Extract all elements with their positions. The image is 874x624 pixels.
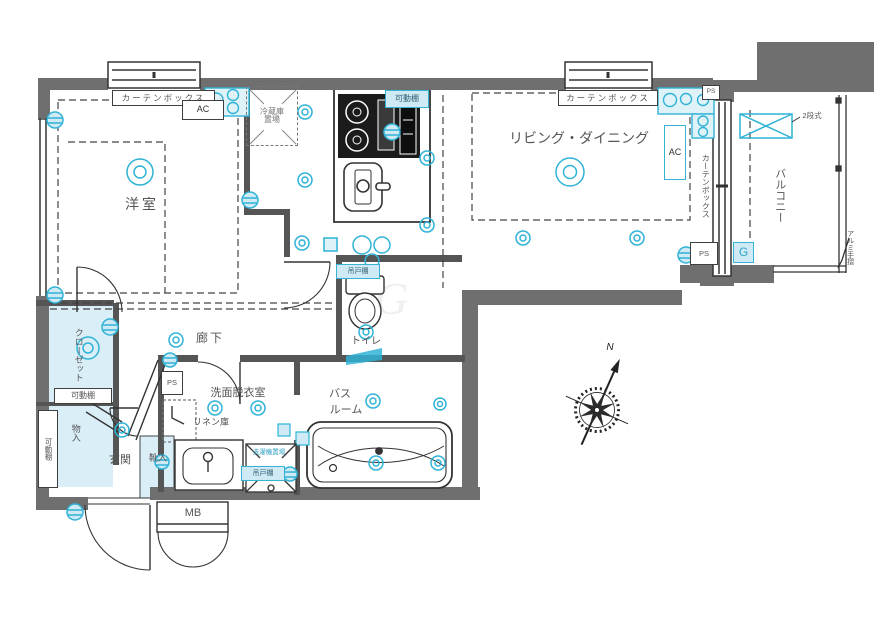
- washer-space-label: 洗濯機置場: [245, 449, 293, 458]
- ps-label-bottom: PS: [690, 242, 718, 265]
- floor-plan: カーテンボックス カーテンボックス カーテンボックス AC AC 可動棚 可動棚…: [0, 0, 874, 624]
- curtain-box-label-side: カーテンボックス: [698, 140, 712, 232]
- watermark-text: G: [375, 272, 408, 325]
- alumi-rail-label: アルミ手摺: [843, 220, 857, 274]
- compass-north-label: N: [602, 342, 618, 354]
- compass-rose: [550, 345, 650, 459]
- room-label-washroom: 洗面脱衣室: [196, 386, 280, 401]
- ps-label-washroom: PS: [161, 371, 183, 395]
- room-label-balcony: バルコニー: [768, 152, 790, 238]
- room-label-storage: 物入: [66, 416, 84, 450]
- room-label-western: 洋室: [110, 194, 174, 214]
- washbasin-icon: [175, 440, 243, 490]
- curtain-box-label-living: カーテンボックス: [558, 90, 658, 106]
- gas-meter-label: G: [733, 242, 754, 263]
- fridge-space-label: 冷蔵庫 置場: [246, 86, 298, 146]
- room-label-entrance: 玄関: [100, 454, 140, 468]
- room-label-shoe-cabinet: 靴入: [144, 453, 172, 465]
- ac-label-west: AC: [182, 100, 224, 120]
- toilet-door-mark: [346, 348, 382, 365]
- room-label-bath-1: バス: [320, 388, 360, 402]
- bath-door-switch-boxes: [278, 424, 309, 445]
- ac-label-living: AC: [664, 125, 686, 180]
- room-label-hallway: 廊下: [186, 330, 234, 346]
- room-label-bath-2: ルーム: [322, 404, 370, 418]
- room-label-living-dining: リビング・ダイニング: [505, 128, 653, 148]
- room-label-closet: クローゼット: [69, 313, 87, 397]
- kitchen-sink-icon: [344, 163, 390, 211]
- movable-shelf-label-kitchen: 可動棚: [385, 90, 429, 108]
- fridge-space-line2: 置場: [264, 116, 280, 124]
- ps-label-top: PS: [702, 85, 720, 100]
- room-label-meter-box: MB: [175, 506, 211, 522]
- room-label-toilet: トイレ: [346, 336, 386, 349]
- hanging-cupboard-label-washer: 吊戸棚: [241, 466, 285, 481]
- two-tier-label: 2段式: [798, 111, 826, 121]
- bathtub-icon: [307, 422, 452, 488]
- room-label-linen: リネン庫: [186, 417, 236, 429]
- drying-rack-icon: [740, 114, 800, 138]
- movable-shelf-label-storage: 可動棚: [38, 410, 58, 488]
- hanging-cupboard-label-toilet: 吊戸棚: [336, 264, 380, 279]
